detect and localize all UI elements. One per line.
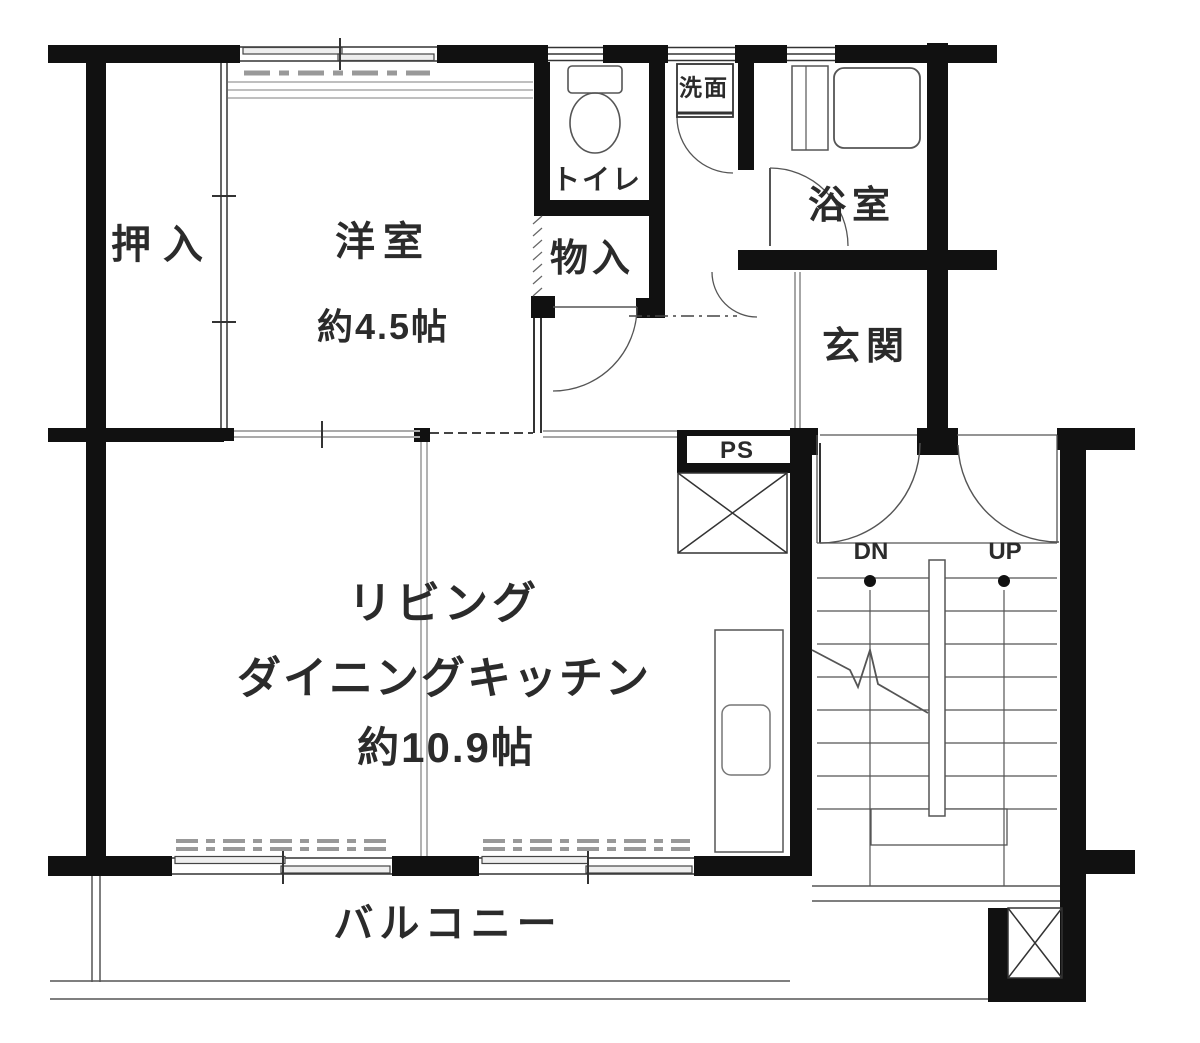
entrance-label: 玄関 bbox=[822, 328, 910, 366]
wall-top-c bbox=[603, 45, 668, 63]
wall-storage-bottom-left bbox=[531, 296, 555, 318]
duct-x-box bbox=[678, 473, 787, 553]
hall-ldk-boundary bbox=[543, 431, 677, 437]
corridor-edge bbox=[812, 886, 1060, 901]
duct-x-box-south bbox=[1008, 908, 1062, 978]
washstand-door bbox=[677, 117, 733, 173]
neighbor-door bbox=[958, 445, 1059, 542]
floor-plan: 押入 洋室 約4.5帖 トイレ 洗面 物入 浴室 玄関 PS DN UP リビン… bbox=[0, 0, 1200, 1043]
entrance-hall-door bbox=[712, 272, 757, 317]
wall-toilet-bottom bbox=[534, 200, 665, 216]
floor-plan-drawing bbox=[0, 0, 1200, 1043]
wall-toilet-right bbox=[649, 62, 665, 318]
wall-bath-bottom bbox=[738, 250, 997, 270]
wall-left bbox=[86, 45, 106, 876]
toilet-icon bbox=[568, 66, 622, 153]
bathtub-icon bbox=[792, 66, 920, 150]
western-room-label: 洋室 bbox=[335, 222, 431, 262]
wall-bottom-a bbox=[48, 856, 172, 876]
living-label-line1: リビング bbox=[348, 582, 540, 626]
wall-stair-right bbox=[1060, 428, 1086, 1002]
kitchen-counter bbox=[715, 630, 783, 852]
wall-bottom-b bbox=[392, 856, 479, 876]
washstand-label: 洗面 bbox=[679, 77, 729, 100]
closet-label: 押入 bbox=[111, 225, 215, 265]
storage-label: 物入 bbox=[550, 240, 634, 278]
ldk-partition-line bbox=[421, 442, 427, 856]
wall-bath-left bbox=[738, 62, 754, 170]
wall-bottom-c bbox=[694, 856, 812, 876]
wall-kitchen-stair bbox=[790, 430, 812, 876]
bathroom-label: 浴室 bbox=[808, 187, 896, 225]
western-room-size-label: 約4.5帖 bbox=[317, 309, 449, 345]
wall-entry-bottom-b bbox=[917, 428, 958, 455]
window-balcony-west bbox=[172, 841, 392, 884]
western-room-east-wall bbox=[534, 318, 541, 433]
stairs-up-label: UP bbox=[988, 540, 1021, 564]
pipe-shaft-label: PS bbox=[720, 439, 754, 463]
stairs-down-label: DN bbox=[854, 540, 889, 564]
sliding-door-western-room bbox=[224, 421, 420, 448]
window-toilet bbox=[548, 48, 603, 61]
window-hall bbox=[668, 48, 735, 61]
front-door bbox=[820, 443, 920, 543]
wall-top-a bbox=[48, 45, 240, 63]
living-label-line2: ダイニングキッチン bbox=[237, 657, 651, 701]
wall-top-d bbox=[735, 45, 787, 63]
wall-toilet-left bbox=[534, 62, 550, 205]
wall-stub-right bbox=[1086, 850, 1135, 874]
window-bath bbox=[787, 48, 835, 61]
living-size-label: 約10.9帖 bbox=[357, 727, 535, 769]
window-balcony-east bbox=[479, 841, 694, 884]
balcony-label: バルコニー bbox=[333, 904, 562, 944]
storage-door bbox=[553, 307, 637, 391]
stair-rail bbox=[929, 560, 945, 816]
toilet-label: トイレ bbox=[552, 166, 642, 194]
storage-hatch bbox=[533, 216, 542, 296]
wall-ldk-north bbox=[48, 428, 224, 442]
entrance-step-lines bbox=[795, 272, 800, 428]
wall-right bbox=[927, 43, 948, 448]
closet-divider bbox=[212, 63, 236, 428]
dn-dot bbox=[864, 575, 876, 587]
stairwell bbox=[812, 435, 1060, 901]
up-dot bbox=[998, 575, 1010, 587]
wall-top-e bbox=[835, 45, 997, 63]
wall-top-b bbox=[437, 45, 548, 63]
wall-ps-bottom bbox=[677, 463, 797, 473]
wall-ps-top bbox=[677, 430, 797, 436]
wall-bottom-right bbox=[988, 978, 1086, 1002]
